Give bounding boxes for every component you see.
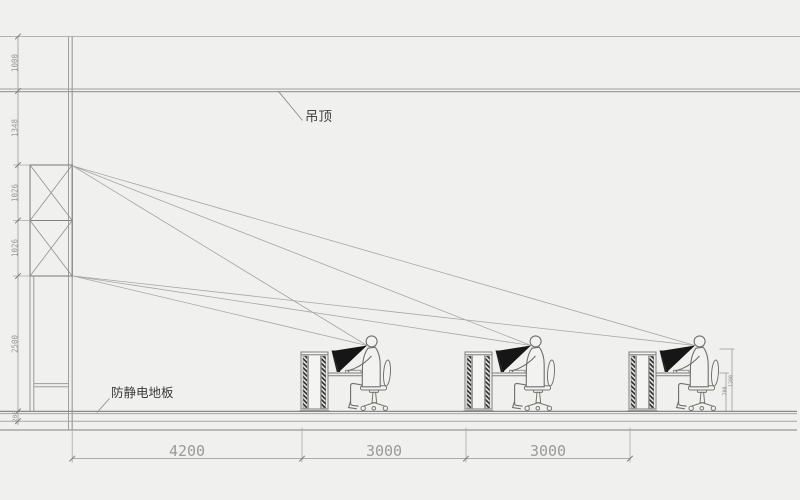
dim-bottom-4200: 4200: [169, 442, 205, 460]
room-shell: [0, 37, 800, 431]
ceiling-leader-line: [278, 91, 303, 121]
floor-leader-line: [97, 399, 110, 413]
dim-right: 1200 700: [720, 349, 735, 411]
floor-callout: 防静电地板: [97, 385, 174, 413]
dim-left-1000: 1000: [11, 53, 20, 72]
dim-left-1348: 1348: [11, 118, 20, 137]
dim-left-200: 200: [11, 411, 19, 423]
display-wall-stand: [30, 276, 69, 411]
workstation-2: [464, 336, 556, 411]
dim-right-eye-height: 1200: [729, 375, 735, 387]
raised-floor: [0, 411, 797, 430]
dim-chain-left: 1000 1348 1026 1026 2500 200: [11, 34, 31, 425]
workstation-3: [628, 336, 720, 411]
ceiling-label: 吊顶: [305, 109, 332, 125]
section-drawing-svg: 1000 1348 1026 1026 2500 200 4200 3000 3…: [0, 0, 800, 500]
dim-right-desk-height: 700: [723, 386, 729, 395]
dim-chain-bottom: 4200 3000 3000: [69, 428, 632, 463]
ceiling-callout: 吊顶: [278, 91, 332, 125]
workstation-1: [300, 336, 392, 411]
dim-left-2500: 2500: [11, 334, 20, 353]
display-wall: [30, 165, 72, 276]
dim-extension-lines: [13, 165, 30, 276]
cad-section-drawing: 1000 1348 1026 1026 2500 200 4200 3000 3…: [0, 0, 800, 500]
dim-left-1026a: 1026: [11, 183, 20, 202]
dim-bottom-3000b: 3000: [530, 442, 566, 460]
floor-label: 防静电地板: [111, 385, 174, 400]
sight-lines: [73, 166, 695, 346]
dim-bottom-3000a: 3000: [366, 442, 402, 460]
dim-left-1026b: 1026: [11, 238, 20, 257]
